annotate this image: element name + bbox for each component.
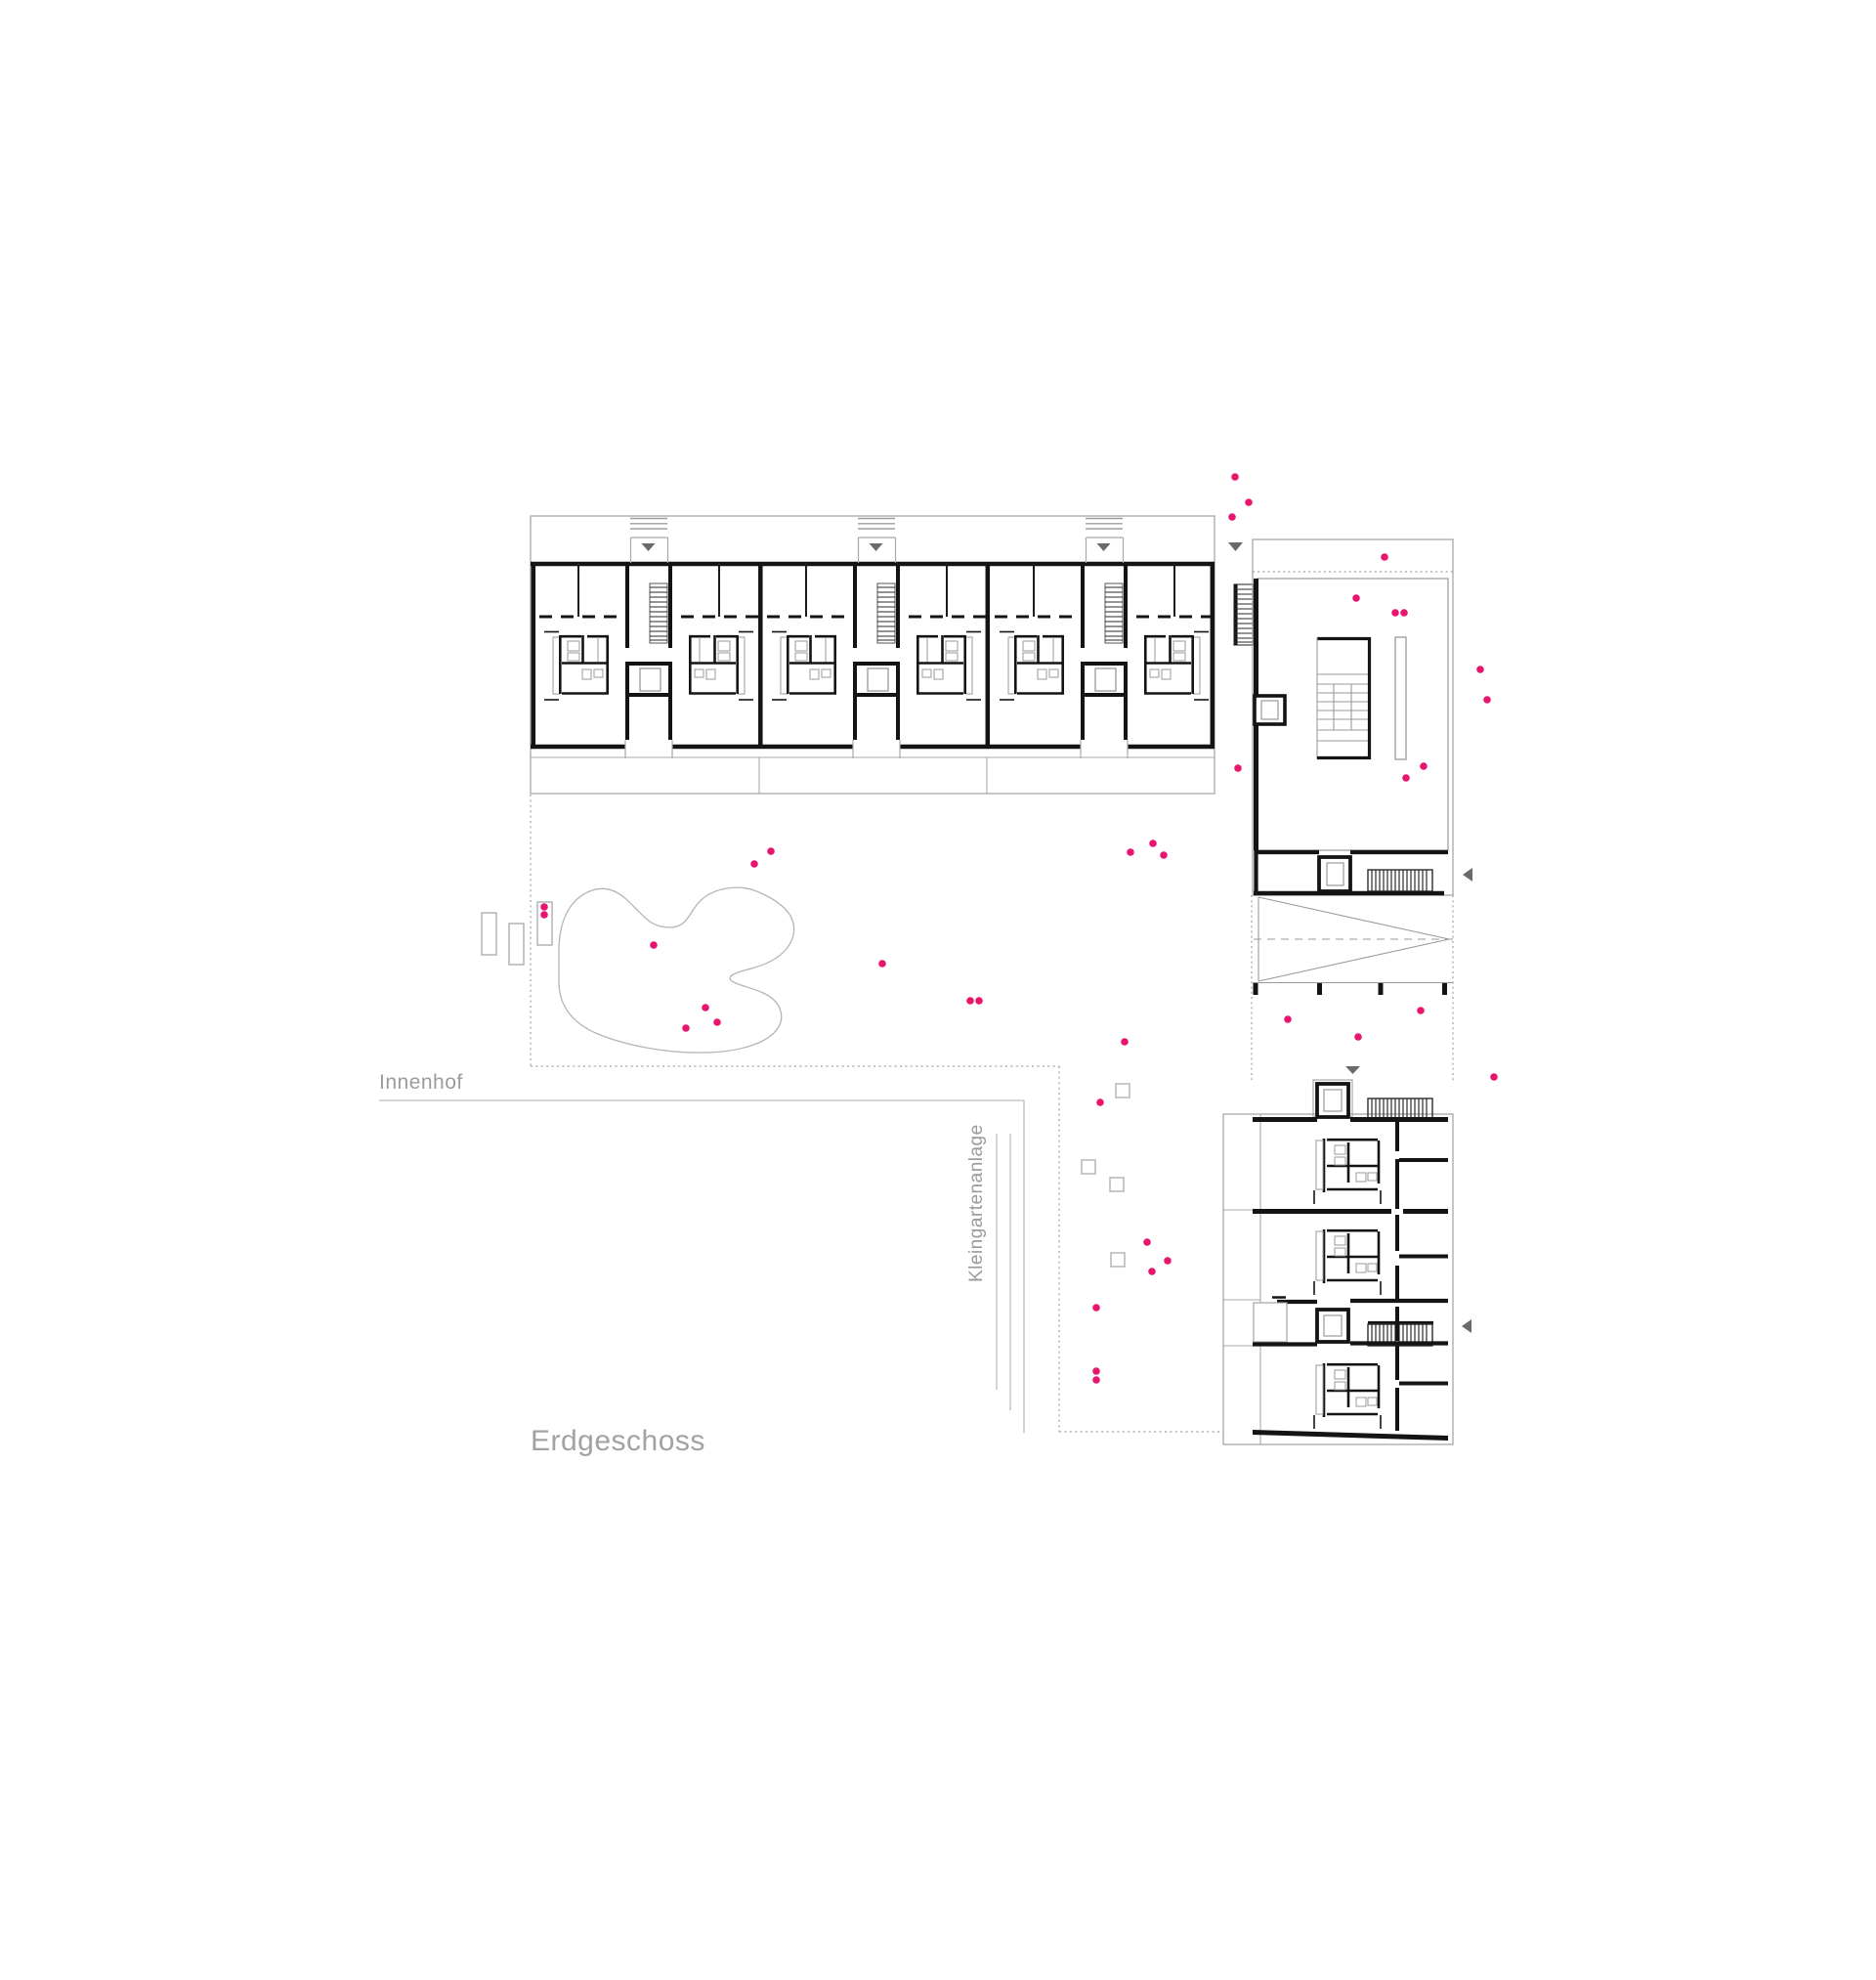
tree-dot — [1164, 1257, 1172, 1265]
tree-dot — [650, 941, 658, 949]
tree-dot — [966, 997, 974, 1005]
right-wing-upper-block — [1253, 539, 1472, 895]
dwelling-pair-2 — [767, 519, 986, 759]
tree-dot — [1092, 1367, 1100, 1375]
tree-dot — [1231, 473, 1239, 481]
tree-dot-group — [540, 473, 1498, 1384]
tree-dot — [540, 903, 548, 911]
top-wing-building — [531, 516, 1215, 794]
dwelling-pair-1 — [539, 519, 758, 759]
tree-dot — [1096, 1098, 1104, 1106]
garden-square — [1116, 1084, 1130, 1098]
tree-dot — [1402, 774, 1410, 782]
dwelling-pair-3 — [995, 519, 1214, 759]
tree-dot — [1092, 1304, 1100, 1312]
garden-square — [1082, 1160, 1095, 1174]
tree-dot — [1490, 1073, 1498, 1081]
entrance-arrow-icon — [1228, 542, 1243, 551]
tree-dot — [975, 997, 983, 1005]
corner-entrance — [1228, 542, 1254, 645]
section-arrow-icon — [1462, 1319, 1471, 1333]
garage-ramp — [1252, 895, 1453, 1083]
allotment-label: Kleingartenanlage — [966, 1124, 987, 1282]
tree-dot — [1417, 1007, 1425, 1014]
central-stair — [1317, 637, 1371, 759]
bench — [509, 924, 524, 965]
tree-dot — [750, 860, 758, 868]
tree-dot — [1483, 696, 1491, 704]
tree-dot — [1381, 553, 1388, 561]
courtyard-label: Innenhof — [379, 1071, 463, 1094]
floor-plan-page: Innenhof Kleingartenanlage Erdgeschoss — [0, 0, 1876, 1980]
tree-dot — [1400, 609, 1408, 617]
garden-square — [1111, 1253, 1125, 1267]
bench-group — [482, 902, 552, 965]
tree-dot — [1143, 1238, 1151, 1246]
pond-outline — [559, 887, 794, 1053]
tree-dot — [767, 847, 775, 855]
tree-dot — [713, 1018, 721, 1026]
fence-lines — [379, 1100, 1024, 1433]
tree-dot — [1121, 1038, 1129, 1046]
tree-dot — [1354, 1033, 1362, 1041]
bench — [482, 913, 496, 955]
tree-dot — [1476, 666, 1484, 673]
tree-dot — [1092, 1376, 1100, 1384]
tree-dot — [1149, 839, 1157, 847]
tree-dot — [1420, 762, 1428, 770]
tree-dot — [1234, 764, 1242, 772]
tree-dot — [1160, 851, 1168, 859]
tree-dot — [1127, 848, 1134, 856]
garden-square-group — [1082, 1084, 1130, 1267]
floor-title: Erdgeschoss — [531, 1425, 705, 1457]
tree-dot — [878, 960, 886, 968]
entrance-arrow-icon — [1345, 1066, 1360, 1074]
tree-dot — [702, 1004, 709, 1012]
garden-square — [1110, 1178, 1124, 1191]
tree-dot — [540, 911, 548, 919]
right-wing-lower-block — [1223, 1080, 1471, 1444]
section-arrow-icon — [1463, 868, 1472, 882]
tree-dot — [1391, 609, 1399, 617]
floor-plan-drawing: Innenhof Kleingartenanlage Erdgeschoss — [0, 0, 1876, 1980]
tree-dot — [1228, 513, 1236, 521]
tree-dot — [1148, 1268, 1156, 1275]
tree-dot — [682, 1024, 690, 1032]
tree-dot — [1245, 498, 1253, 506]
tree-dot — [1352, 594, 1360, 602]
tree-dot — [1284, 1015, 1292, 1023]
